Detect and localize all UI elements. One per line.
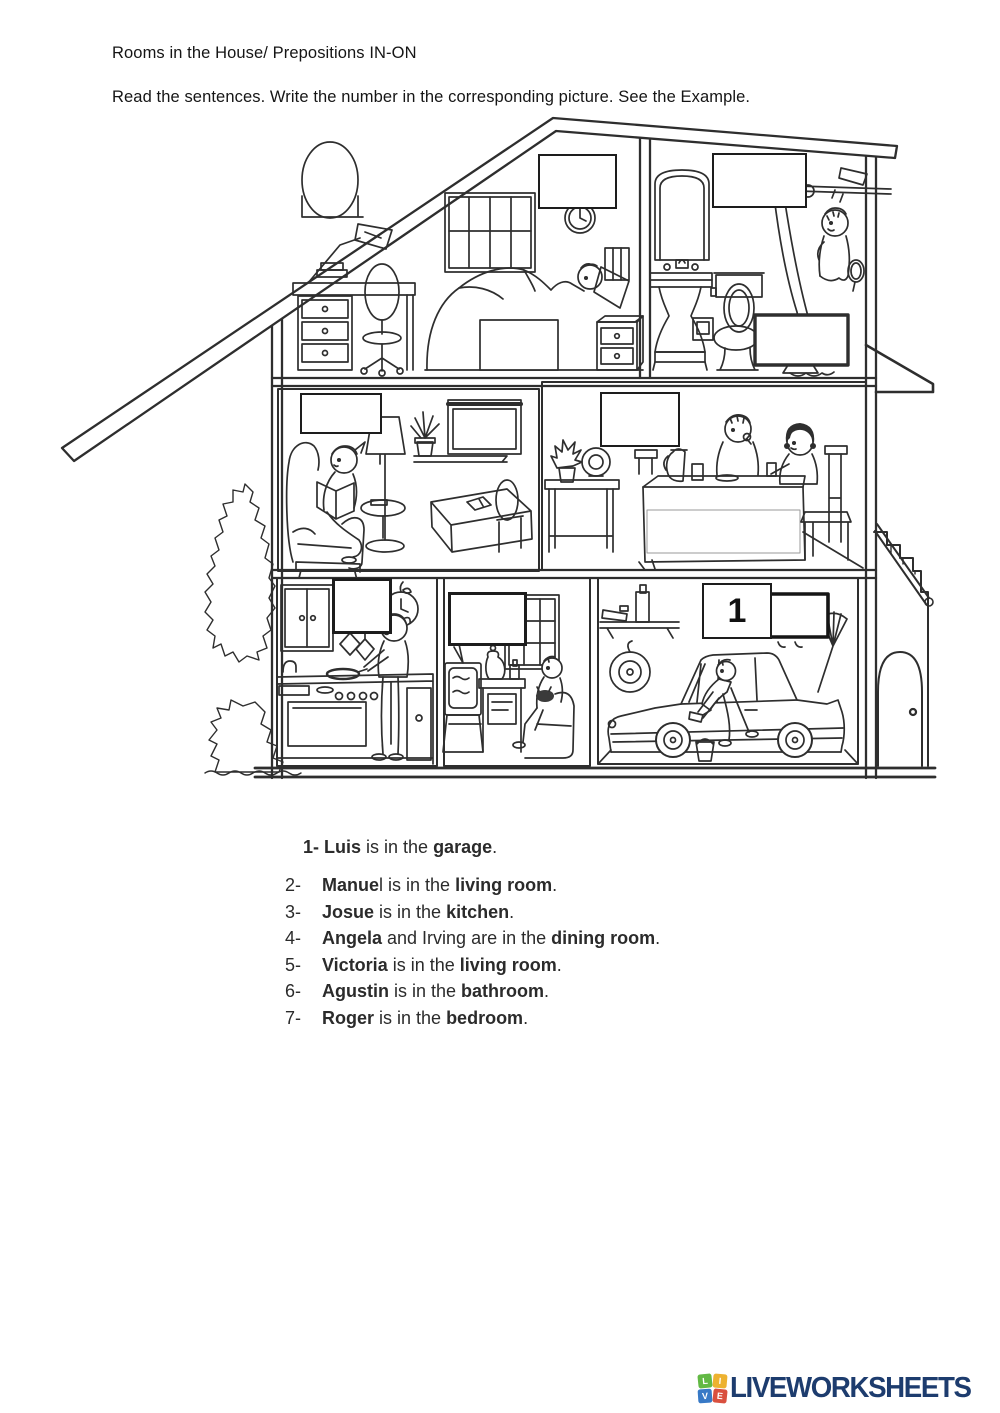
- logo-square-e: E: [712, 1388, 727, 1403]
- instructions-text: Read the sentences. Write the number in …: [112, 88, 750, 107]
- logo-square-v: V: [698, 1388, 713, 1403]
- example-sentence: 1- Luis is in the garage.: [303, 837, 497, 858]
- answer-value-garage: 1: [728, 592, 747, 631]
- answer-box-bedroom[interactable]: [538, 154, 617, 209]
- house-illustration: [55, 112, 940, 800]
- answer-box-tv-room[interactable]: [448, 592, 527, 646]
- sentence-item-6: 6-Agustin is in the bathroom.: [285, 978, 660, 1005]
- answer-box-garage[interactable]: 1: [702, 583, 772, 639]
- example-lead: 1- Luis: [303, 837, 361, 857]
- sentence-item-7: 7-Roger is in the bedroom.: [285, 1005, 660, 1032]
- sentence-item-4: 4-Angela and Irving are in the dining ro…: [285, 925, 660, 952]
- logo-square-i: I: [712, 1373, 727, 1388]
- example-place: garage: [433, 837, 492, 857]
- sentence-list: 2-Manuel is in the living room. 3-Josue …: [285, 872, 660, 1031]
- logo-squares-icon: L I V E: [698, 1374, 727, 1403]
- dining-room-furniture: [545, 415, 863, 570]
- tree-bush: [205, 484, 301, 775]
- answer-box-dining-room[interactable]: [600, 392, 680, 447]
- liveworksheets-logo[interactable]: L I V E LIVEWORKSHEETS: [698, 1368, 978, 1408]
- brand-text: LIVEWORKSHEETS: [730, 1372, 971, 1405]
- logo-square-l: L: [697, 1373, 712, 1388]
- answer-box-kitchen[interactable]: [332, 578, 392, 634]
- worksheet-page: Rooms in the House/ Prepositions IN-ON R…: [0, 0, 1000, 1413]
- sentence-item-2: 2-Manuel is in the living room.: [285, 872, 660, 899]
- answer-box-bathroom[interactable]: [712, 153, 807, 208]
- answer-box-living-room[interactable]: [300, 393, 382, 434]
- sentence-item-3: 3-Josue is in the kitchen.: [285, 899, 660, 926]
- sentence-item-5: 5-Victoria is in the living room.: [285, 952, 660, 979]
- page-title: Rooms in the House/ Prepositions IN-ON: [112, 44, 417, 63]
